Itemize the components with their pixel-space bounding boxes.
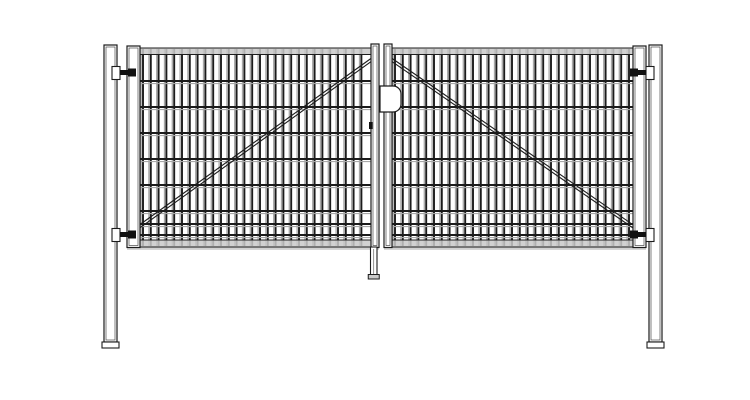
left-post-foot [102, 342, 119, 348]
left-leaf-rail-shadow [127, 248, 379, 250]
hinge-block [630, 231, 638, 239]
right-leaf-rail-shadow [384, 248, 646, 250]
drawing-canvas [0, 0, 750, 400]
right-leaf-top-rail [384, 48, 646, 55]
hinge-block [128, 69, 136, 77]
right-post-foot [647, 342, 664, 348]
hinge-bracket [112, 229, 120, 242]
keyhole [369, 122, 373, 129]
left-leaf-bottom-rail [127, 240, 379, 247]
right-leaf-bottom-rail [384, 240, 646, 247]
left-post [102, 45, 119, 348]
left-leaf-top-rail [127, 48, 379, 55]
hinge-bracket [646, 229, 654, 242]
hinge-bracket [646, 67, 654, 80]
hinge-block [128, 231, 136, 239]
hinge-bracket [112, 67, 120, 80]
right-post [647, 45, 664, 348]
drop-rod-foot [368, 275, 379, 280]
double-gate-technical-drawing [0, 0, 750, 400]
lock-plate [380, 86, 401, 112]
hinge-block [630, 69, 638, 77]
